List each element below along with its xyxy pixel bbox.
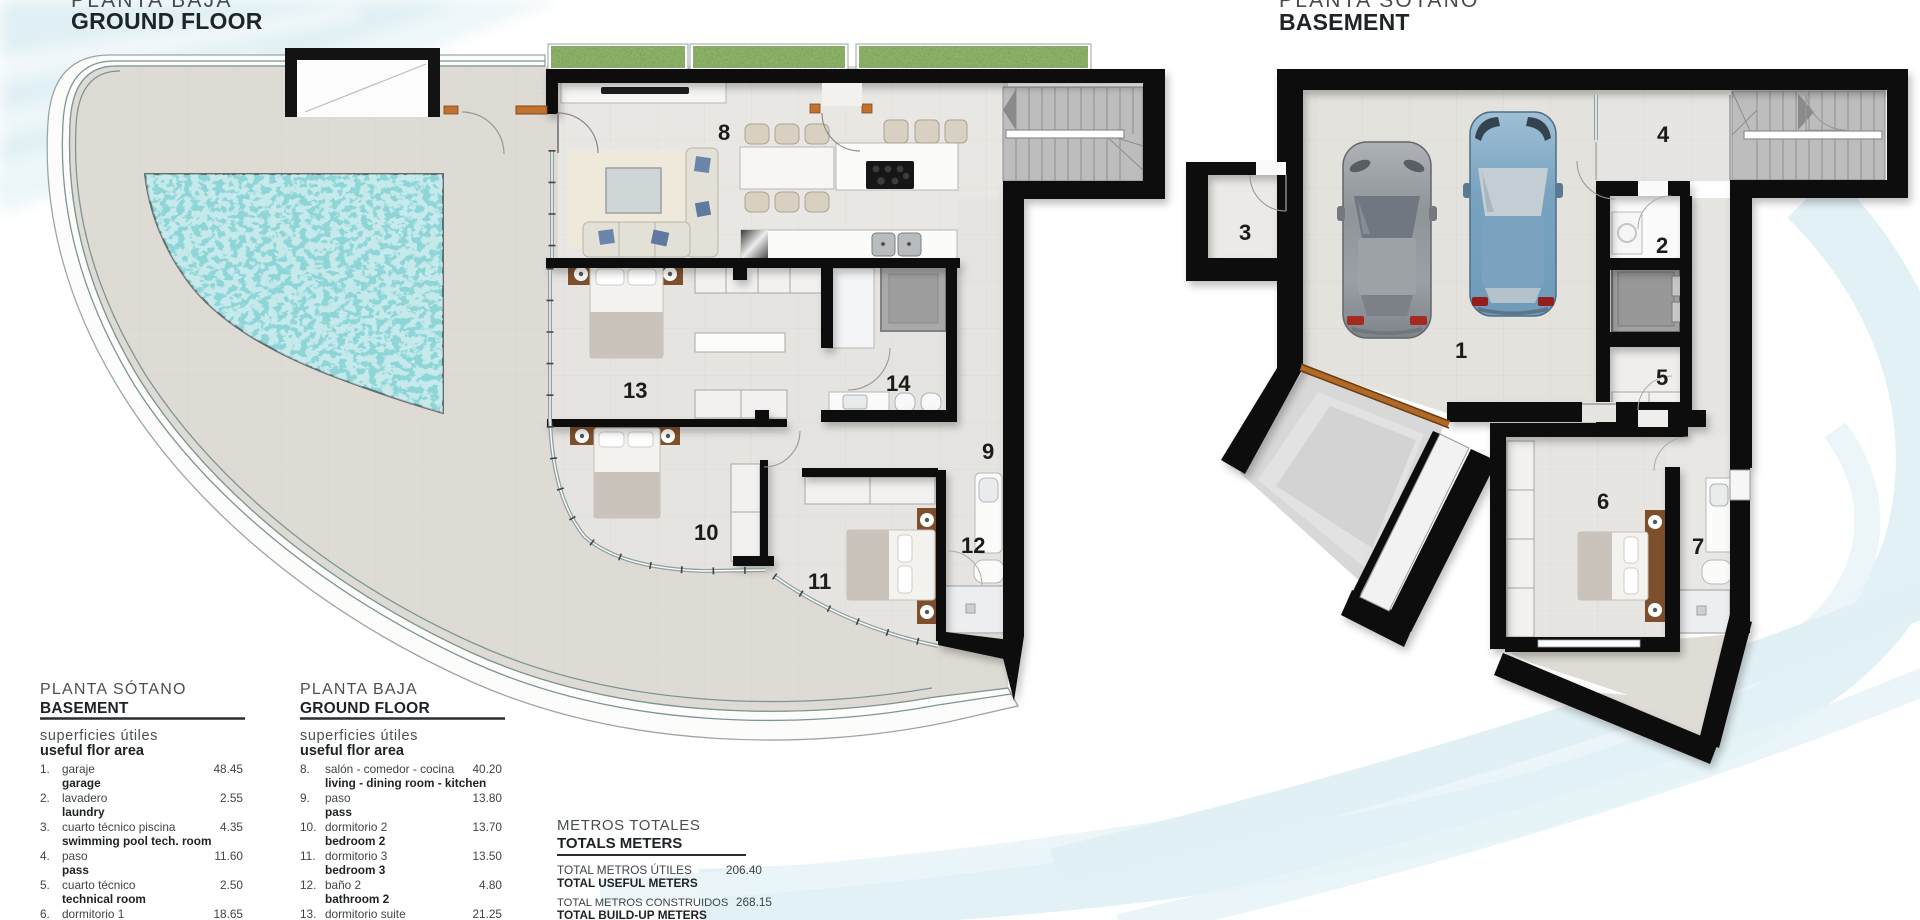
svg-text:paso: paso: [325, 791, 351, 805]
svg-text:9.: 9.: [300, 791, 310, 805]
svg-text:GROUND FLOOR: GROUND FLOOR: [300, 700, 430, 717]
svg-text:cuarto técnico piscina: cuarto técnico piscina: [62, 820, 176, 834]
svg-text:8: 8: [718, 120, 730, 145]
svg-text:TOTAL METROS ÚTILES: TOTAL METROS ÚTILES: [557, 863, 692, 877]
svg-text:2.: 2.: [40, 791, 50, 805]
svg-text:dormitorio suite: dormitorio suite: [325, 907, 406, 920]
svg-text:METROS TOTALES: METROS TOTALES: [557, 817, 700, 834]
svg-text:salón - comedor - cocina: salón - comedor - cocina: [325, 762, 455, 776]
svg-text:10.: 10.: [300, 820, 316, 834]
svg-text:bathroom 2: bathroom 2: [325, 892, 390, 906]
svg-text:13.50: 13.50: [472, 849, 502, 863]
svg-text:9: 9: [982, 439, 994, 464]
svg-text:4.80: 4.80: [479, 878, 502, 892]
svg-text:TOTAL USEFUL METERS: TOTAL USEFUL METERS: [557, 876, 698, 890]
svg-text:dormitorio 2: dormitorio 2: [325, 820, 387, 834]
svg-text:13.70: 13.70: [472, 820, 502, 834]
svg-text:6: 6: [1597, 489, 1609, 514]
svg-text:18.65: 18.65: [213, 907, 243, 920]
svg-text:BASEMENT: BASEMENT: [1279, 9, 1410, 35]
svg-text:TOTAL BUILD-UP METERS: TOTAL BUILD-UP METERS: [557, 908, 707, 920]
svg-text:dormitorio 1: dormitorio 1: [62, 907, 124, 920]
svg-text:4.35: 4.35: [220, 820, 243, 834]
svg-text:14: 14: [886, 371, 911, 396]
svg-text:pass: pass: [62, 863, 89, 877]
svg-text:13.80: 13.80: [472, 791, 502, 805]
svg-text:11.: 11.: [300, 849, 316, 863]
svg-text:21.25: 21.25: [472, 907, 502, 920]
svg-text:lavadero: lavadero: [62, 791, 108, 805]
svg-text:GROUND FLOOR: GROUND FLOOR: [71, 8, 263, 34]
svg-text:4: 4: [1657, 122, 1670, 147]
svg-text:10: 10: [694, 520, 718, 545]
svg-text:paso: paso: [62, 849, 88, 863]
svg-text:13: 13: [623, 378, 647, 403]
svg-text:1.: 1.: [40, 762, 50, 776]
svg-text:cuarto técnico: cuarto técnico: [62, 878, 136, 892]
svg-text:268.15: 268.15: [736, 895, 773, 909]
svg-text:7: 7: [1692, 534, 1704, 559]
svg-text:3.: 3.: [40, 820, 50, 834]
svg-text:3: 3: [1239, 220, 1251, 245]
svg-text:2: 2: [1656, 233, 1668, 258]
svg-text:4.: 4.: [40, 849, 50, 863]
svg-text:13.: 13.: [300, 907, 316, 920]
svg-text:living - dining room - kitchen: living - dining room - kitchen: [325, 776, 486, 790]
svg-text:48.45: 48.45: [213, 762, 243, 776]
svg-text:swimming pool tech. room: swimming pool tech. room: [62, 834, 211, 848]
svg-text:BASEMENT: BASEMENT: [40, 700, 129, 717]
svg-text:dormitorio 3: dormitorio 3: [325, 849, 388, 863]
svg-text:206.40: 206.40: [726, 863, 763, 877]
svg-text:2.50: 2.50: [220, 878, 243, 892]
svg-text:12.: 12.: [300, 878, 316, 892]
svg-text:baño 2: baño 2: [325, 878, 361, 892]
svg-text:technical room: technical room: [62, 892, 146, 906]
svg-text:superficies útiles: superficies útiles: [300, 728, 418, 744]
svg-text:40.20: 40.20: [472, 762, 502, 776]
svg-text:TOTALS METERS: TOTALS METERS: [557, 835, 682, 852]
svg-text:useful flor area: useful flor area: [40, 743, 145, 759]
svg-text:superficies útiles: superficies útiles: [40, 728, 158, 744]
svg-text:bedroom 2: bedroom 2: [325, 834, 386, 848]
svg-text:bedroom 3: bedroom 3: [325, 863, 386, 877]
svg-text:garaje: garaje: [62, 762, 95, 776]
svg-text:laundry: laundry: [62, 805, 105, 819]
svg-text:6.: 6.: [40, 907, 50, 920]
svg-text:11: 11: [808, 569, 831, 594]
svg-text:pass: pass: [325, 805, 352, 819]
svg-text:garage: garage: [62, 776, 101, 790]
svg-text:2.55: 2.55: [220, 791, 243, 805]
svg-text:useful flor area: useful flor area: [300, 743, 405, 759]
svg-text:PLANTA SÓTANO: PLANTA SÓTANO: [40, 679, 187, 698]
svg-text:12: 12: [961, 533, 985, 558]
svg-text:1: 1: [1455, 338, 1467, 363]
svg-text:11.60: 11.60: [214, 849, 243, 863]
svg-text:8.: 8.: [300, 762, 310, 776]
svg-text:PLANTA BAJA: PLANTA BAJA: [300, 681, 418, 698]
svg-text:5: 5: [1656, 365, 1668, 390]
svg-text:5.: 5.: [40, 878, 50, 892]
